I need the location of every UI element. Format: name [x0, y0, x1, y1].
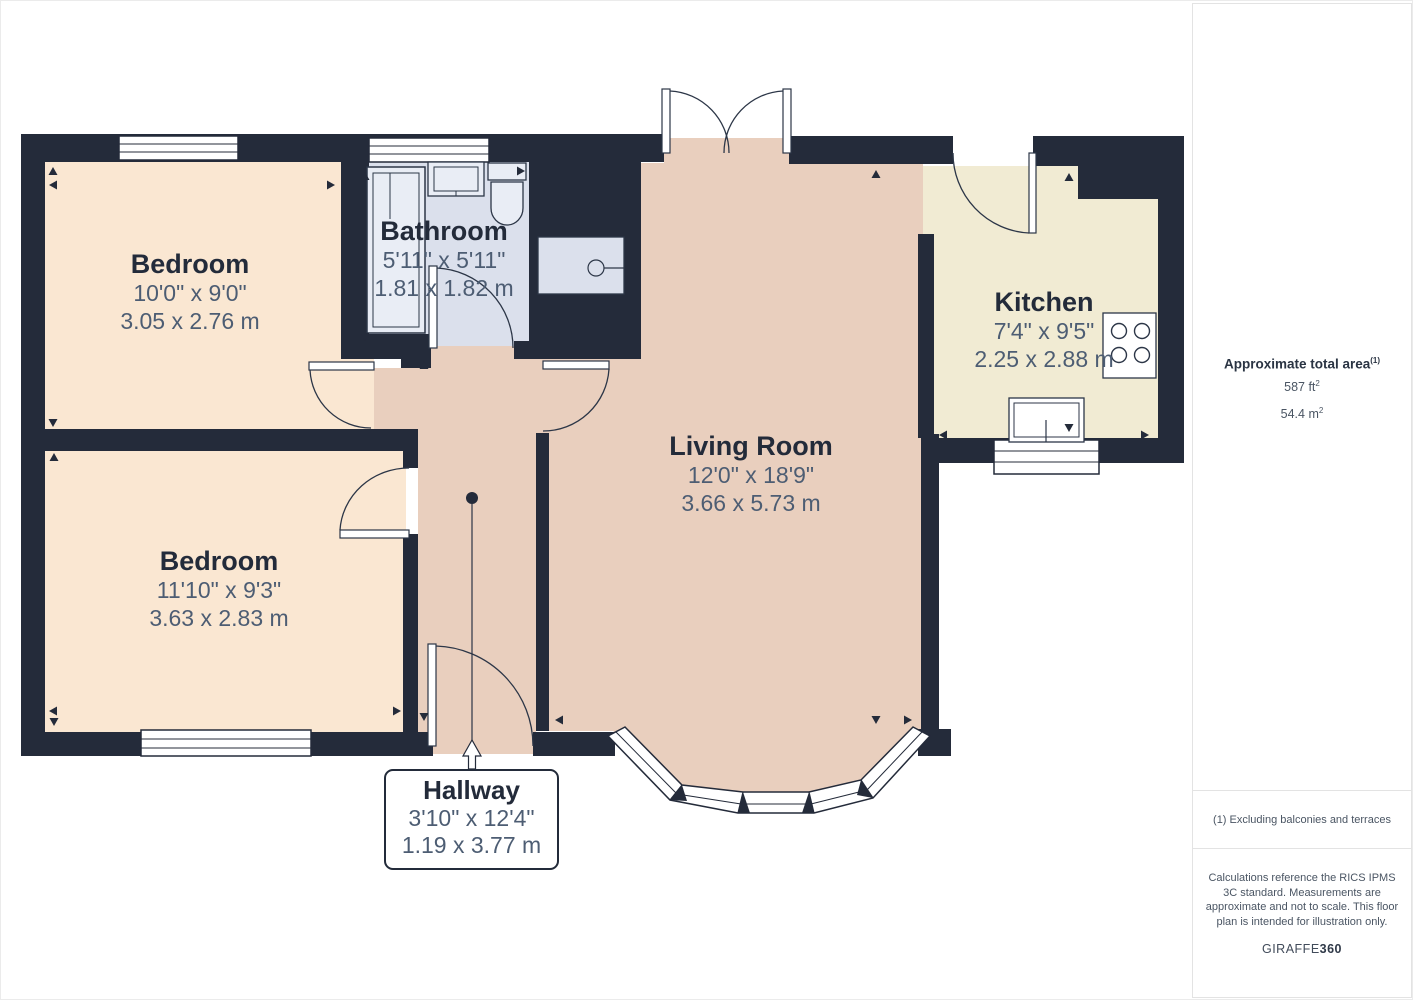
room-dimensions-imperial: 11'10" x 9'3" — [149, 576, 288, 604]
bathroom-sink-symbol — [428, 162, 484, 196]
total-area-sqft: 587 ft2 — [1193, 372, 1411, 399]
room-label-bathroom: Bathroom 5'11" x 5'11" 1.81 x 1.82 m — [374, 216, 513, 302]
window-kitchen — [994, 440, 1099, 474]
room-dimensions-metric: 3.05 x 2.76 m — [120, 307, 259, 335]
room-name: Bathroom — [374, 216, 513, 246]
room-dimensions-metric: 2.25 x 2.88 m — [974, 345, 1113, 373]
room-dimensions-imperial: 12'0" x 18'9" — [669, 461, 833, 489]
kitchen-sink-symbol — [1009, 398, 1084, 442]
room-label-bedroom-1: Bedroom 10'0" x 9'0" 3.05 x 2.76 m — [120, 249, 259, 335]
disclaimer-section: Calculations reference the RICS IPMS 3C … — [1193, 848, 1411, 997]
footnote-marker: (1) — [1370, 356, 1380, 365]
room-dimensions-metric: 3.63 x 2.83 m — [149, 604, 288, 632]
room-dimensions-imperial: 7'4" x 9'5" — [974, 317, 1113, 345]
room-dimensions-metric: 1.19 x 3.77 m — [386, 832, 557, 859]
footnote-text: (1) Excluding balconies and terraces — [1213, 814, 1391, 826]
room-dimensions-imperial: 3'10" x 12'4" — [386, 805, 557, 832]
room-dimensions-metric: 1.81 x 1.82 m — [374, 274, 513, 302]
leader-dot — [466, 492, 478, 504]
total-area-block: Approximate total area(1) 587 ft2 54.4 m… — [1193, 356, 1411, 426]
room-name: Kitchen — [974, 287, 1113, 317]
room-dimensions-imperial: 5'11" x 5'11" — [374, 246, 513, 274]
room-dimensions-imperial: 10'0" x 9'0" — [120, 279, 259, 307]
window-bedroom-2 — [141, 730, 311, 756]
footnote-section: (1) Excluding balconies and terraces — [1193, 790, 1411, 848]
room-label-kitchen: Kitchen 7'4" x 9'5" 2.25 x 2.88 m — [974, 287, 1113, 373]
room-name: Bedroom — [149, 546, 288, 576]
room-label-living-room: Living Room 12'0" x 18'9" 3.66 x 5.73 m — [669, 431, 833, 517]
window-bedroom-1 — [119, 136, 238, 160]
giraffe360-logo: GIRAFFE360 — [1193, 942, 1411, 956]
room-name: Hallway — [386, 775, 557, 805]
total-area-title: Approximate total area(1) — [1193, 356, 1411, 372]
room-name: Living Room — [669, 431, 833, 461]
room-name: Bedroom — [120, 249, 259, 279]
room-label-bedroom-2: Bedroom 11'10" x 9'3" 3.63 x 2.83 m — [149, 546, 288, 632]
total-area-sqm: 54.4 m2 — [1193, 399, 1411, 426]
disclaimer-text: Calculations reference the RICS IPMS 3C … — [1203, 871, 1401, 929]
floor-plan-page: Bedroom 10'0" x 9'0" 3.05 x 2.76 m Bathr… — [0, 0, 1413, 1000]
hallway-callout: Hallway 3'10" x 12'4" 1.19 x 3.77 m — [384, 769, 559, 870]
info-sidebar: Approximate total area(1) 587 ft2 54.4 m… — [1192, 3, 1412, 998]
boiler-cupboard-symbol — [538, 237, 624, 294]
room-dimensions-metric: 3.66 x 5.73 m — [669, 489, 833, 517]
window-bathroom — [369, 138, 489, 162]
